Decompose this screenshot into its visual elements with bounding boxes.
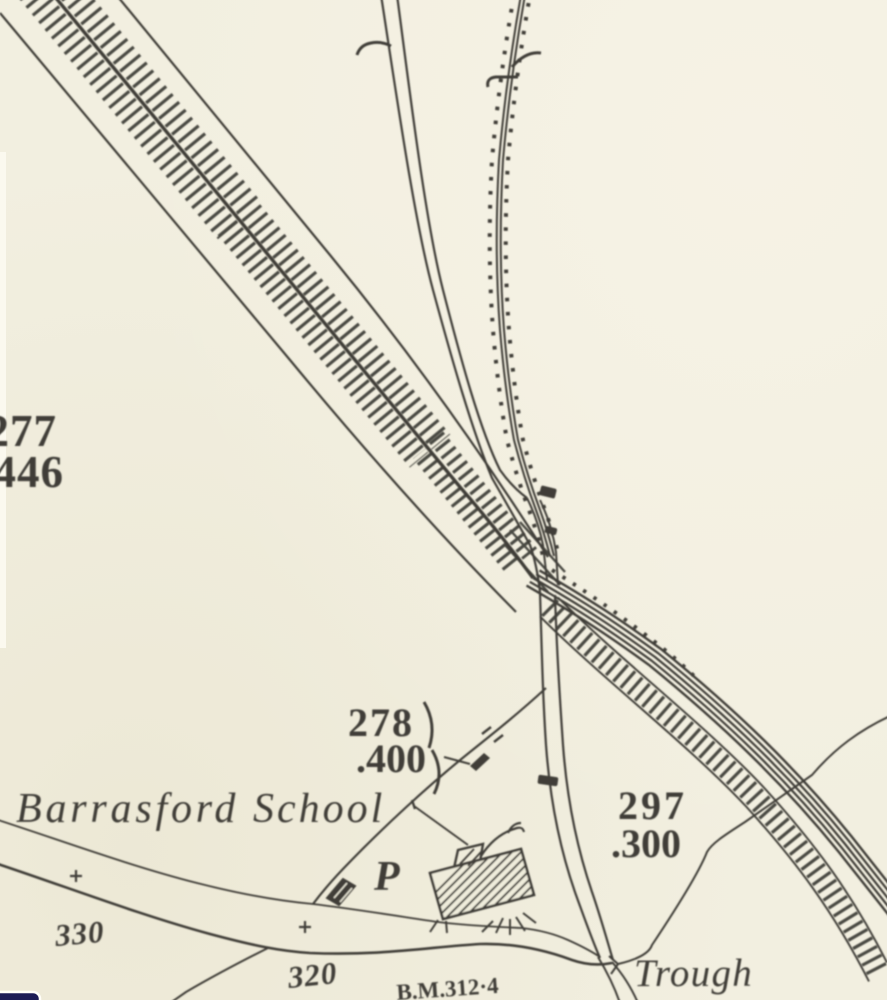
svg-text:School: School xyxy=(253,786,385,832)
svg-text:Barrasford: Barrasford xyxy=(16,786,239,832)
svg-text:.300: .300 xyxy=(611,821,681,866)
svg-text:P: P xyxy=(373,854,400,900)
svg-text:320: 320 xyxy=(285,955,339,995)
svg-text:Trough: Trough xyxy=(634,952,753,995)
svg-text:330: 330 xyxy=(53,914,106,953)
svg-text:446: 446 xyxy=(0,447,64,497)
svg-text:.400: .400 xyxy=(356,736,426,781)
